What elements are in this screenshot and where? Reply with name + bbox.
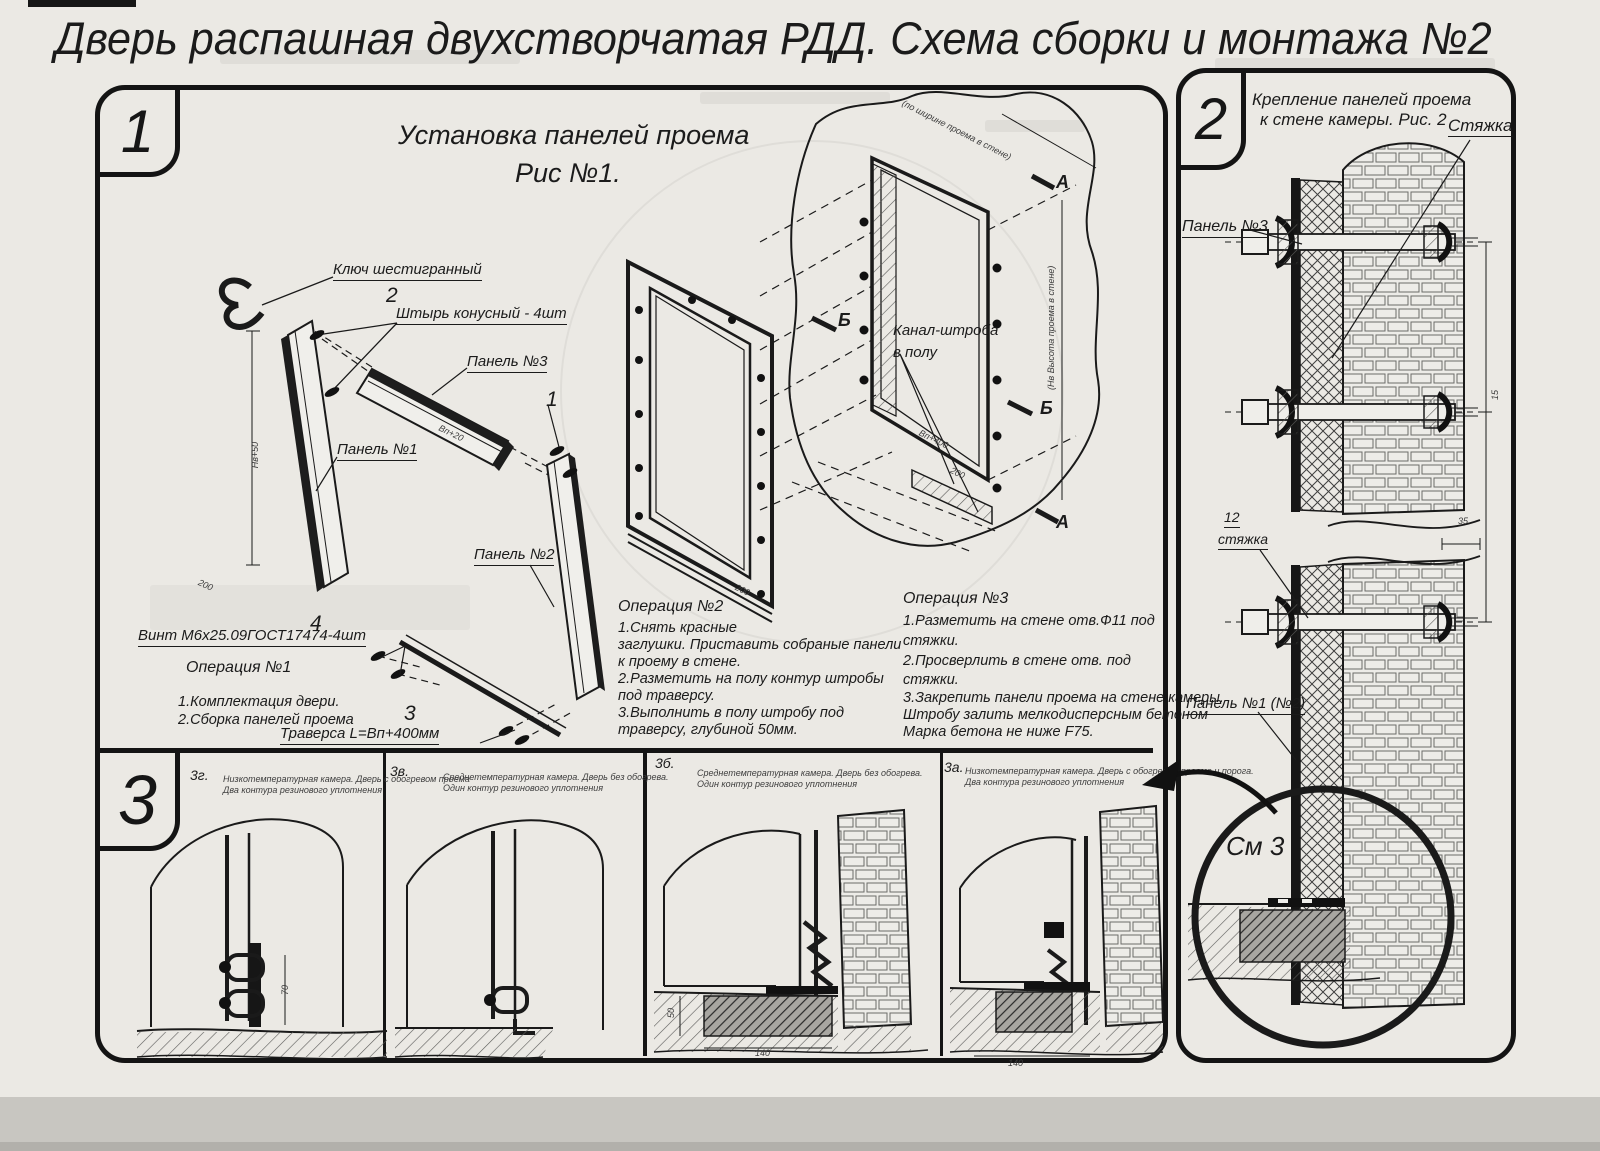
section3a-id: 3а. bbox=[944, 760, 963, 776]
panel3-label: Панель №3 bbox=[467, 354, 547, 373]
tie-label: Стяжка bbox=[1448, 116, 1513, 137]
section3a-desc: Два контура резинового уплотнения bbox=[965, 777, 1124, 787]
see-detail-label: См 3 bbox=[1226, 832, 1284, 861]
dim-140: 140 bbox=[755, 1048, 770, 1058]
section3b-desc: Один контур резинового уплотнения bbox=[697, 779, 857, 789]
panel2-label: Панель №2 bbox=[474, 547, 554, 566]
operation2-line: 1.Снять красные bbox=[618, 620, 737, 636]
operation3-line: Марка бетона не ниже F75. bbox=[903, 724, 1094, 740]
screw-label: Винт М6х25.09ГОСТ17474-4шт bbox=[138, 628, 366, 647]
section3-divider bbox=[643, 753, 647, 1056]
section3v-desc: Один контур резинового уплотнения bbox=[443, 783, 603, 793]
operation1-title: Операция №1 bbox=[186, 659, 291, 677]
section-mark-b: Б bbox=[838, 310, 851, 330]
panel12-label: Панель №1 (№2) bbox=[1186, 696, 1305, 715]
operation2-line: 2.Разметить на полу контур штробы bbox=[618, 671, 884, 687]
section3g-id: 3г. bbox=[190, 768, 209, 784]
arrowhead-icon bbox=[1142, 759, 1180, 791]
figure1-caption-2: Рис №1. bbox=[515, 158, 621, 188]
dim-70: 70 bbox=[280, 985, 290, 995]
hex-key-icon bbox=[222, 280, 262, 327]
section3g-desc: Низкотемпературная камера. Дверь с обогр… bbox=[223, 774, 470, 784]
figure2-caption: Крепление панелей проема bbox=[1252, 90, 1471, 109]
operation3-line: 1.Разметить на стене отв.Ф11 под bbox=[903, 613, 1155, 629]
section3-divider-top bbox=[100, 748, 1153, 753]
section3v-id: 3в. bbox=[390, 764, 409, 780]
channel-label-2: в полу bbox=[893, 345, 937, 362]
dim-height-note: (Нв Высота проема в стене) bbox=[1046, 266, 1056, 390]
operation2-line: заглушки. Приставить собраные панели bbox=[618, 637, 901, 653]
cross-section-3b bbox=[648, 790, 933, 1070]
panel1-label: Панель №1 bbox=[337, 442, 417, 461]
operation2-title: Операция №2 bbox=[618, 598, 723, 616]
operation2-line: траверсу, глубиной 50мм. bbox=[618, 722, 798, 738]
item-number-1: 1 bbox=[546, 388, 558, 412]
section-mark-a: А bbox=[1056, 172, 1069, 192]
cross-section-3a bbox=[948, 790, 1173, 1075]
detail-arrow bbox=[1128, 735, 1278, 830]
operation3-title: Операция №3 bbox=[903, 590, 1008, 608]
hex-key-label: Ключ шестигранный bbox=[333, 262, 482, 281]
scan-edge-bottom2 bbox=[0, 1142, 1600, 1151]
operation2-line: под траверсу. bbox=[618, 688, 715, 704]
section-mark-b: Б bbox=[1040, 398, 1053, 418]
scan-edge-top bbox=[28, 0, 136, 7]
page-title: Дверь распашная двухстворчатая РДД. Схем… bbox=[55, 14, 1492, 64]
operation3-line: стяжки. bbox=[903, 672, 959, 688]
operation3-line: Штробу залить мелкодисперсным бетоном bbox=[903, 707, 1208, 723]
section3b-id: 3б. bbox=[655, 756, 675, 772]
section3b-desc: Среднетемпературная камера. Дверь без об… bbox=[697, 768, 923, 778]
traverse-item-number: 3 bbox=[404, 702, 416, 726]
tie-item-number: 12 bbox=[1224, 510, 1240, 528]
channel-label: Канал-штроба bbox=[893, 323, 998, 340]
dim-140: 140 bbox=[1008, 1058, 1023, 1068]
dim-nv50: Нв+50 bbox=[250, 442, 260, 468]
pin-item-number: 2 bbox=[386, 284, 398, 308]
dim-50: 50 bbox=[666, 1008, 676, 1018]
dim-15: 15 bbox=[1490, 390, 1500, 400]
section3g-desc: Два контура резинового уплотнения bbox=[223, 785, 382, 795]
operation2-line: 3.Выполнить в полу штробу под bbox=[618, 705, 844, 721]
panel3-label-fig2: Панель №3 bbox=[1182, 218, 1268, 238]
section-mark-a: А bbox=[1056, 512, 1069, 532]
traverse-label: Траверса L=Вп+400мм bbox=[280, 726, 439, 745]
cone-pin-label: Штырь конусный - 4шт bbox=[396, 306, 567, 325]
operation3-line: 2.Просверлить в стене отв. под bbox=[903, 653, 1131, 669]
wall-fixing-drawing bbox=[1180, 112, 1520, 1062]
cross-section-3g bbox=[135, 795, 390, 1065]
section3v-desc: Среднетемпературная камера. Дверь без об… bbox=[443, 772, 669, 782]
dim-35: 35 bbox=[1458, 516, 1468, 526]
scanned-drawing-page: Дверь распашная двухстворчатая РДД. Схем… bbox=[0, 0, 1600, 1151]
operation3-line: стяжки. bbox=[903, 633, 959, 649]
figure1-badge: 1 bbox=[100, 90, 180, 177]
section3-divider bbox=[940, 753, 943, 1056]
cross-section-3v bbox=[393, 795, 638, 1065]
figure1-caption: Установка панелей проема bbox=[398, 120, 749, 150]
tie-label-2: стяжка bbox=[1218, 532, 1268, 550]
operation2-line: к проему в стене. bbox=[618, 654, 741, 670]
figure1-badge-number: 1 bbox=[121, 97, 154, 166]
operation1-line: 1.Комплектация двери. bbox=[178, 694, 339, 710]
